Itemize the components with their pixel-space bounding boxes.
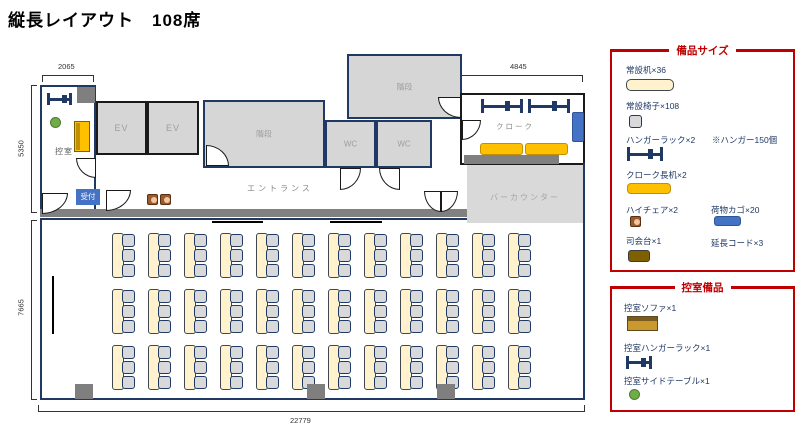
legend-item-label: クローク長机×2 <box>626 169 687 181</box>
dim-hall-height: 7665 <box>17 293 26 323</box>
chair-icon <box>482 249 495 262</box>
room-wc-2-label: WC <box>378 140 430 149</box>
chair-icon <box>122 264 135 277</box>
chair-icon <box>194 376 207 389</box>
chair-icon <box>446 320 459 333</box>
chair-icon <box>122 361 135 374</box>
chair-icon <box>338 305 351 318</box>
chair-icon <box>266 290 279 303</box>
chair-icon <box>158 346 171 359</box>
room-wc-1: WC <box>325 120 376 168</box>
chair-icon <box>122 376 135 389</box>
desk-unit <box>364 233 388 278</box>
dim-hikae-width: 2065 <box>58 62 75 71</box>
room-ev-2-label: EV <box>149 123 197 133</box>
high-chair-icon <box>147 194 158 205</box>
wall <box>583 163 585 220</box>
chair-icon <box>446 234 459 247</box>
desk-unit <box>184 233 208 278</box>
desk-unit <box>508 233 532 278</box>
pillar <box>307 384 325 399</box>
room-stairs-main-label: 階段 <box>205 129 323 140</box>
chair-icon <box>302 346 315 359</box>
legend-hikae-title: 控室備品 <box>675 280 731 295</box>
cloak-table-icon <box>525 143 568 155</box>
desk-unit <box>400 289 424 334</box>
dim-bracket <box>460 75 583 82</box>
chair-icon <box>518 361 531 374</box>
chair-icon <box>302 320 315 333</box>
chair-icon <box>122 234 135 247</box>
chair-icon <box>446 290 459 303</box>
chair-icon <box>338 320 351 333</box>
room-ev-2: EV <box>147 101 199 155</box>
chair-icon <box>446 249 459 262</box>
room-ev-1: EV <box>96 101 147 155</box>
hanger-rack-icon <box>626 356 652 369</box>
cloak-table-icon <box>627 183 671 194</box>
chair-icon <box>230 376 243 389</box>
pillar <box>75 384 93 399</box>
desk-unit <box>328 345 352 390</box>
legend-equipment: 備品サイズ 常設机×36 常設椅子×108 ハンガーラック×2 ※ハンガー150… <box>610 50 795 272</box>
legend-hikae-header: 控室備品 <box>610 280 795 295</box>
chair-icon <box>446 305 459 318</box>
hanger-rack-icon <box>528 99 570 113</box>
chair-icon <box>194 320 207 333</box>
chair-icon <box>482 346 495 359</box>
desk-unit <box>256 289 280 334</box>
chair-icon <box>230 249 243 262</box>
chair-icon <box>266 249 279 262</box>
legend-equipment-header: 備品サイズ <box>610 43 795 58</box>
wall-block <box>77 87 95 103</box>
chair-icon <box>374 234 387 247</box>
chair-icon <box>410 305 423 318</box>
chair-icon <box>410 290 423 303</box>
desk-unit <box>400 233 424 278</box>
desk-unit <box>328 233 352 278</box>
chair-icon <box>410 346 423 359</box>
desk-unit <box>148 233 172 278</box>
chair-icon <box>266 361 279 374</box>
door-arc <box>340 168 361 190</box>
desk-unit <box>328 289 352 334</box>
dim-total-width: 22779 <box>290 416 311 425</box>
chair-icon <box>482 305 495 318</box>
chair-icon <box>230 264 243 277</box>
chair-icon <box>338 361 351 374</box>
legend-item-label: ハイチェア×2 <box>626 204 678 216</box>
desk-unit <box>472 289 496 334</box>
chair-icon <box>302 234 315 247</box>
chair-icon <box>266 376 279 389</box>
chair-icon <box>482 234 495 247</box>
chair-icon <box>482 290 495 303</box>
door-arc <box>106 190 131 211</box>
legend-line <box>610 49 669 52</box>
dim-cloak-width: 4845 <box>510 62 527 71</box>
chair-icon <box>122 320 135 333</box>
chair-icon <box>302 361 315 374</box>
chair-icon <box>230 361 243 374</box>
chair-icon <box>194 346 207 359</box>
dim-bracket <box>42 75 94 82</box>
page-title: 縦長レイアウト 108席 <box>8 6 201 31</box>
chair-icon <box>302 249 315 262</box>
chair-icon <box>266 305 279 318</box>
chair-icon <box>158 290 171 303</box>
hanger-rack-icon <box>47 93 72 105</box>
chair-icon <box>482 376 495 389</box>
chair-icon <box>518 249 531 262</box>
chair-icon <box>230 320 243 333</box>
floor-plan-page: 縦長レイアウト 108席 2065 4845 5350 7665 22779 控… <box>0 0 797 447</box>
chair-icon <box>158 249 171 262</box>
desk-unit <box>436 289 460 334</box>
chair-icon <box>518 346 531 359</box>
chair-icon <box>230 234 243 247</box>
chair-icon <box>482 320 495 333</box>
desk-unit <box>112 289 136 334</box>
chair-icon <box>122 305 135 318</box>
chair-icon <box>518 290 531 303</box>
legend-line <box>736 49 795 52</box>
chair-icon <box>482 264 495 277</box>
legend-item-label: 控室ソファ×1 <box>624 302 676 314</box>
legend-item-label: ハンガーラック×2 <box>626 134 695 146</box>
sofa-icon <box>74 121 90 152</box>
chair-icon <box>266 320 279 333</box>
side-table-icon <box>50 117 61 128</box>
entrance-label: エントランス <box>235 183 325 194</box>
desk-unit <box>508 289 532 334</box>
luggage-basket-icon <box>572 112 584 142</box>
chair-icon <box>194 249 207 262</box>
legend-item-label: 常設椅子×108 <box>626 100 679 112</box>
desk-unit <box>292 233 316 278</box>
room-wc-2: WC <box>376 120 432 168</box>
room-ev-1-label: EV <box>98 123 145 133</box>
desk-icon <box>626 79 674 91</box>
chair-icon <box>266 264 279 277</box>
dim-bracket <box>31 85 37 213</box>
chair-icon <box>158 320 171 333</box>
high-chair-icon <box>630 216 641 227</box>
chair-icon <box>338 264 351 277</box>
desk-unit <box>364 289 388 334</box>
chair-icon <box>338 376 351 389</box>
chair-icon <box>338 346 351 359</box>
desk-unit <box>184 289 208 334</box>
legend-hikae: 控室備品 控室ソファ×1 控室ハンガーラック×1 控室サイドテーブル×1 <box>610 287 795 412</box>
desk-unit <box>472 345 496 390</box>
legend-item-note: ※ハンガー150個 <box>712 134 777 146</box>
pillar <box>437 384 455 399</box>
desk-unit <box>400 345 424 390</box>
chair-icon <box>410 264 423 277</box>
chair-icon <box>158 234 171 247</box>
legend-item-label: 控室ハンガーラック×1 <box>624 342 710 354</box>
desk-unit <box>292 289 316 334</box>
desk-unit <box>364 345 388 390</box>
door-arc <box>379 168 400 190</box>
dim-bracket <box>38 405 585 412</box>
chair-icon <box>158 305 171 318</box>
chair-icon <box>410 234 423 247</box>
legend-equipment-title: 備品サイズ <box>669 43 735 58</box>
chair-icon <box>374 346 387 359</box>
chair-icon <box>302 290 315 303</box>
chair-icon <box>374 320 387 333</box>
mc-stand-icon <box>628 250 650 262</box>
chair-icon <box>410 376 423 389</box>
chair-icon <box>122 249 135 262</box>
chair-icon <box>230 346 243 359</box>
chair-icon <box>158 376 171 389</box>
chair-icon <box>158 361 171 374</box>
desk-unit <box>148 345 172 390</box>
chair-icon <box>410 361 423 374</box>
legend-item-label: 控室サイドテーブル×1 <box>624 375 710 387</box>
wall-strip <box>40 209 468 217</box>
chair-icon <box>302 264 315 277</box>
room-wc-1-label: WC <box>327 140 374 149</box>
desk-unit <box>436 233 460 278</box>
chair-icon <box>194 361 207 374</box>
wall-opening <box>330 221 382 223</box>
chair-icon <box>194 234 207 247</box>
chair-icon <box>518 305 531 318</box>
chair-icon <box>302 305 315 318</box>
chair-icon <box>410 320 423 333</box>
desk-unit <box>508 345 532 390</box>
chair-icon <box>230 290 243 303</box>
sofa-icon <box>627 316 658 331</box>
chair-icon <box>122 290 135 303</box>
legend-item-label: 延長コード×3 <box>711 237 763 249</box>
chair-icon <box>266 346 279 359</box>
desk-unit <box>184 345 208 390</box>
chair-icon <box>374 376 387 389</box>
chair-icon <box>266 234 279 247</box>
chair-icon <box>518 234 531 247</box>
dim-bracket <box>31 220 37 400</box>
desk-grid <box>112 233 532 393</box>
legend-item-label: 司会台×1 <box>626 235 661 247</box>
chair-icon <box>446 361 459 374</box>
hanger-rack-icon <box>627 147 663 161</box>
high-chair-icon <box>160 194 171 205</box>
desk-unit <box>472 233 496 278</box>
room-bar-counter-label: バーカウンター <box>467 192 583 203</box>
desk-unit <box>220 233 244 278</box>
dim-upper-height: 5350 <box>17 134 26 164</box>
desk-unit <box>112 345 136 390</box>
legend-line <box>610 286 675 289</box>
desk-unit <box>256 233 280 278</box>
chair-icon <box>446 346 459 359</box>
chair-icon <box>338 290 351 303</box>
chair-icon <box>410 249 423 262</box>
chair-icon <box>374 361 387 374</box>
desk-unit <box>112 233 136 278</box>
legend-line <box>731 286 796 289</box>
whiteboard-line <box>52 276 54 334</box>
chair-icon <box>338 249 351 262</box>
chair-icon <box>230 305 243 318</box>
chair-icon <box>518 320 531 333</box>
chair-icon <box>374 290 387 303</box>
chair-icon <box>374 305 387 318</box>
wall-strip <box>464 155 559 164</box>
chair-icon <box>374 264 387 277</box>
desk-unit <box>256 345 280 390</box>
chair-icon <box>518 264 531 277</box>
desk-unit <box>220 289 244 334</box>
desk-unit <box>148 289 172 334</box>
cloak-table-icon <box>480 143 523 155</box>
chair-icon <box>194 305 207 318</box>
chair-icon <box>338 234 351 247</box>
chair-icon <box>194 264 207 277</box>
chair-icon <box>194 290 207 303</box>
chair-icon <box>374 249 387 262</box>
chair-icon <box>158 264 171 277</box>
room-stairs-top-label: 階段 <box>349 81 460 92</box>
desk-unit <box>220 345 244 390</box>
legend-item-label: 常設机×36 <box>626 64 666 76</box>
chair-icon <box>446 264 459 277</box>
reception-badge: 受付 <box>76 189 100 205</box>
chair-icon <box>518 376 531 389</box>
luggage-basket-icon <box>714 216 741 226</box>
chair-icon <box>482 361 495 374</box>
chair-icon <box>122 346 135 359</box>
legend-item-label: 荷物カゴ×20 <box>711 204 759 216</box>
side-table-icon <box>629 389 640 400</box>
chair-icon <box>629 115 642 128</box>
wall-opening <box>212 221 263 223</box>
hanger-rack-icon <box>481 99 523 113</box>
